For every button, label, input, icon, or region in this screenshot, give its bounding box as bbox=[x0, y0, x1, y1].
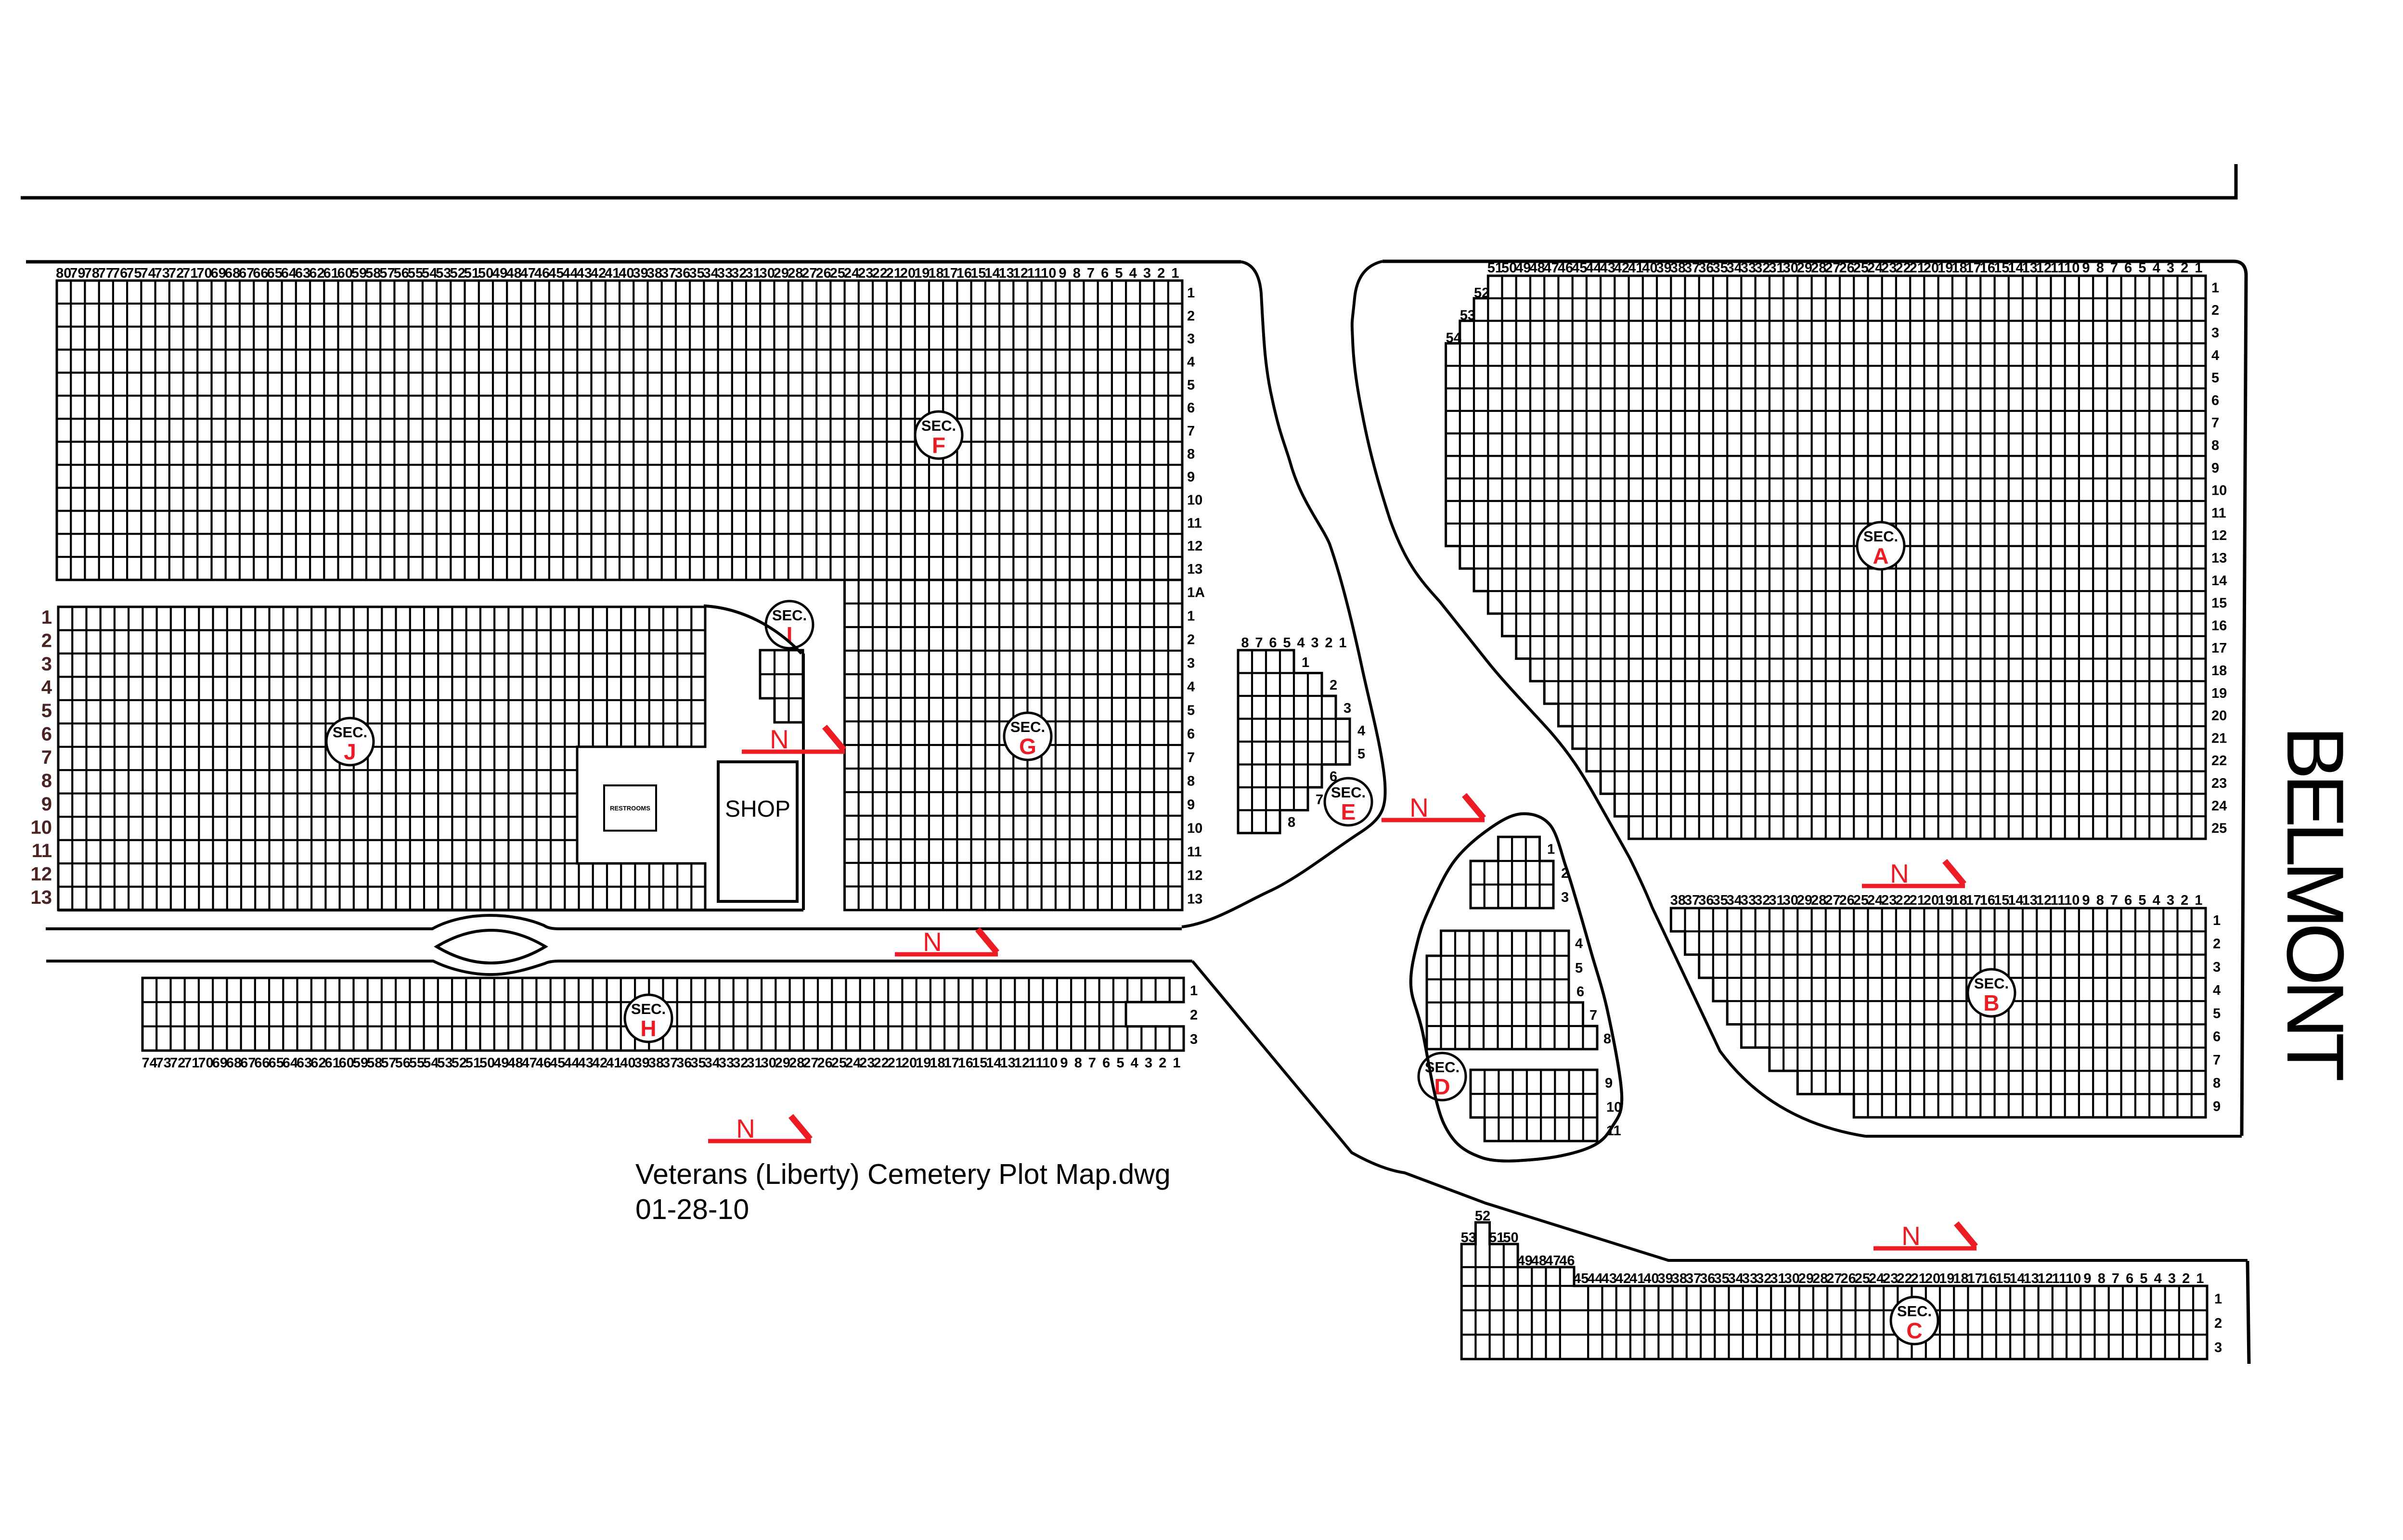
svg-text:3: 3 bbox=[1187, 332, 1195, 347]
svg-text:1: 1 bbox=[1547, 842, 1555, 857]
svg-text:28: 28 bbox=[1811, 260, 1826, 276]
svg-text:50: 50 bbox=[478, 266, 493, 281]
svg-text:54: 54 bbox=[422, 266, 437, 281]
svg-text:N: N bbox=[736, 1114, 755, 1143]
svg-text:17: 17 bbox=[1966, 893, 1981, 908]
svg-text:6: 6 bbox=[2126, 1271, 2133, 1286]
svg-text:5: 5 bbox=[2140, 1271, 2147, 1286]
svg-text:1: 1 bbox=[1187, 609, 1195, 624]
svg-text:3: 3 bbox=[2167, 260, 2174, 276]
svg-text:60: 60 bbox=[337, 266, 353, 281]
svg-text:74: 74 bbox=[140, 266, 155, 281]
svg-text:65: 65 bbox=[269, 1055, 284, 1071]
svg-text:31: 31 bbox=[745, 266, 761, 281]
svg-text:22: 22 bbox=[1895, 893, 1911, 908]
svg-text:10: 10 bbox=[2066, 1271, 2081, 1286]
svg-text:15: 15 bbox=[972, 1055, 987, 1071]
svg-text:52: 52 bbox=[452, 1055, 467, 1071]
svg-text:43: 43 bbox=[1600, 260, 1615, 276]
svg-text:43: 43 bbox=[577, 266, 592, 281]
svg-text:01-28-10: 01-28-10 bbox=[635, 1193, 749, 1225]
svg-text:5: 5 bbox=[2138, 893, 2146, 908]
svg-text:SEC.: SEC. bbox=[631, 1001, 666, 1017]
svg-text:9: 9 bbox=[1187, 470, 1195, 485]
svg-text:19: 19 bbox=[1938, 893, 1953, 908]
svg-text:40: 40 bbox=[620, 1055, 635, 1071]
svg-text:SEC.: SEC. bbox=[333, 724, 367, 741]
svg-text:4: 4 bbox=[41, 677, 52, 698]
svg-text:28: 28 bbox=[789, 1055, 804, 1071]
svg-text:61: 61 bbox=[324, 1055, 340, 1071]
svg-text:68: 68 bbox=[225, 266, 240, 281]
svg-text:23: 23 bbox=[859, 1055, 875, 1071]
svg-text:SEC.: SEC. bbox=[1010, 719, 1045, 735]
svg-text:4: 4 bbox=[2153, 893, 2160, 908]
svg-text:23: 23 bbox=[2211, 776, 2227, 791]
svg-text:13: 13 bbox=[2022, 893, 2037, 908]
svg-text:52: 52 bbox=[1474, 285, 1489, 301]
svg-text:47: 47 bbox=[1544, 260, 1559, 276]
svg-text:23: 23 bbox=[858, 266, 873, 281]
svg-text:2: 2 bbox=[1325, 635, 1332, 651]
svg-text:6: 6 bbox=[1101, 266, 1109, 281]
svg-text:2: 2 bbox=[2182, 1271, 2190, 1286]
svg-text:4: 4 bbox=[1187, 355, 1195, 370]
svg-text:13: 13 bbox=[1000, 1055, 1015, 1071]
svg-text:25: 25 bbox=[1853, 260, 1869, 276]
svg-text:9: 9 bbox=[2082, 260, 2090, 276]
svg-text:35: 35 bbox=[689, 266, 704, 281]
svg-text:3: 3 bbox=[1145, 1055, 1152, 1071]
svg-text:58: 58 bbox=[367, 1055, 382, 1071]
svg-text:7: 7 bbox=[1087, 266, 1095, 281]
svg-text:8: 8 bbox=[2213, 1076, 2221, 1091]
svg-text:38: 38 bbox=[647, 266, 662, 281]
svg-text:20: 20 bbox=[1924, 260, 1939, 276]
svg-text:65: 65 bbox=[267, 266, 283, 281]
svg-text:27: 27 bbox=[1825, 893, 1840, 908]
svg-text:12: 12 bbox=[2036, 260, 2052, 276]
svg-text:14: 14 bbox=[2211, 573, 2227, 589]
svg-text:5: 5 bbox=[2211, 371, 2219, 386]
svg-text:31: 31 bbox=[747, 1055, 762, 1071]
svg-text:SEC.: SEC. bbox=[921, 417, 956, 434]
svg-text:59: 59 bbox=[353, 1055, 368, 1071]
svg-text:74: 74 bbox=[142, 1055, 157, 1071]
svg-text:21: 21 bbox=[886, 266, 902, 281]
svg-text:46: 46 bbox=[534, 266, 550, 281]
svg-text:7: 7 bbox=[2110, 893, 2118, 908]
svg-text:F: F bbox=[932, 433, 945, 458]
svg-text:45: 45 bbox=[1572, 260, 1587, 276]
svg-text:16: 16 bbox=[1980, 260, 1995, 276]
svg-text:21: 21 bbox=[1910, 893, 1925, 908]
svg-text:53: 53 bbox=[437, 1055, 452, 1071]
svg-text:33: 33 bbox=[719, 1055, 734, 1071]
svg-text:61: 61 bbox=[323, 266, 338, 281]
svg-text:44: 44 bbox=[562, 266, 578, 281]
svg-text:2: 2 bbox=[2213, 937, 2221, 952]
svg-text:21: 21 bbox=[2211, 731, 2227, 746]
svg-text:SEC.: SEC. bbox=[1863, 528, 1898, 545]
svg-text:N: N bbox=[1409, 793, 1429, 822]
svg-text:50: 50 bbox=[1501, 260, 1517, 276]
svg-text:SHOP: SHOP bbox=[725, 796, 790, 822]
svg-text:10: 10 bbox=[1187, 493, 1202, 508]
svg-text:12: 12 bbox=[2036, 893, 2052, 908]
svg-text:6: 6 bbox=[1102, 1055, 1110, 1071]
svg-text:3: 3 bbox=[41, 654, 52, 675]
svg-text:10: 10 bbox=[2064, 893, 2080, 908]
svg-text:H: H bbox=[640, 1016, 656, 1041]
svg-text:20: 20 bbox=[1925, 1271, 1940, 1286]
svg-text:24: 24 bbox=[1869, 1271, 1884, 1286]
svg-text:8: 8 bbox=[2096, 893, 2104, 908]
svg-text:46: 46 bbox=[1559, 1253, 1575, 1269]
svg-text:4: 4 bbox=[1187, 680, 1195, 695]
svg-text:50: 50 bbox=[1503, 1230, 1518, 1245]
svg-text:1A: 1A bbox=[1187, 585, 1205, 601]
svg-text:62: 62 bbox=[310, 1055, 326, 1071]
svg-text:4: 4 bbox=[1575, 936, 1583, 951]
svg-text:39: 39 bbox=[633, 266, 648, 281]
svg-text:72: 72 bbox=[170, 1055, 185, 1071]
svg-text:13: 13 bbox=[31, 887, 52, 908]
svg-text:16: 16 bbox=[1981, 1271, 1997, 1286]
svg-text:26: 26 bbox=[1840, 1271, 1856, 1286]
svg-text:38: 38 bbox=[1670, 893, 1686, 908]
svg-text:50: 50 bbox=[479, 1055, 495, 1071]
svg-text:19: 19 bbox=[914, 266, 930, 281]
svg-text:1: 1 bbox=[2211, 280, 2219, 295]
svg-text:54: 54 bbox=[423, 1055, 439, 1071]
svg-text:N: N bbox=[923, 927, 942, 957]
svg-text:42: 42 bbox=[1615, 1271, 1631, 1286]
svg-text:18: 18 bbox=[928, 266, 943, 281]
svg-text:14: 14 bbox=[986, 1055, 1001, 1071]
svg-text:32: 32 bbox=[1755, 893, 1770, 908]
svg-text:6: 6 bbox=[2213, 1029, 2221, 1045]
svg-text:13: 13 bbox=[1187, 892, 1202, 907]
svg-text:18: 18 bbox=[930, 1055, 945, 1071]
svg-text:9: 9 bbox=[41, 794, 52, 815]
svg-text:49: 49 bbox=[492, 266, 507, 281]
svg-text:34: 34 bbox=[1727, 893, 1742, 908]
svg-text:24: 24 bbox=[1867, 893, 1883, 908]
svg-text:10: 10 bbox=[2064, 260, 2080, 276]
svg-text:57: 57 bbox=[381, 1055, 396, 1071]
svg-text:1: 1 bbox=[2195, 893, 2202, 908]
svg-text:6: 6 bbox=[41, 724, 52, 745]
svg-text:13: 13 bbox=[2211, 551, 2227, 566]
svg-text:67: 67 bbox=[239, 266, 254, 281]
svg-text:5: 5 bbox=[1187, 703, 1195, 719]
svg-text:12: 12 bbox=[2038, 1271, 2053, 1286]
svg-text:8: 8 bbox=[1187, 774, 1195, 789]
svg-text:21: 21 bbox=[888, 1055, 903, 1071]
svg-text:6: 6 bbox=[2211, 393, 2219, 408]
svg-text:34: 34 bbox=[705, 1055, 720, 1071]
svg-text:15: 15 bbox=[1994, 260, 2009, 276]
svg-text:11: 11 bbox=[2051, 893, 2066, 908]
svg-text:25: 25 bbox=[831, 1055, 847, 1071]
svg-text:32: 32 bbox=[733, 1055, 748, 1071]
svg-text:B: B bbox=[1983, 990, 1999, 1015]
svg-text:5: 5 bbox=[1357, 746, 1365, 762]
svg-text:SEC.: SEC. bbox=[1974, 975, 2009, 992]
svg-text:52: 52 bbox=[1475, 1208, 1490, 1224]
svg-text:69: 69 bbox=[212, 1055, 228, 1071]
svg-text:17: 17 bbox=[944, 1055, 959, 1071]
svg-text:29: 29 bbox=[1797, 893, 1812, 908]
svg-text:76: 76 bbox=[112, 266, 128, 281]
svg-text:20: 20 bbox=[1924, 893, 1939, 908]
svg-text:15: 15 bbox=[1994, 893, 2009, 908]
svg-text:N: N bbox=[1901, 1221, 1921, 1251]
svg-text:70: 70 bbox=[198, 1055, 213, 1071]
svg-text:41: 41 bbox=[1628, 260, 1643, 276]
svg-text:1: 1 bbox=[1187, 285, 1195, 301]
svg-text:47: 47 bbox=[520, 266, 536, 281]
svg-text:24: 24 bbox=[2211, 798, 2227, 814]
svg-text:48: 48 bbox=[1529, 260, 1545, 276]
svg-text:16: 16 bbox=[1980, 893, 1995, 908]
svg-text:J: J bbox=[344, 739, 356, 764]
svg-text:2: 2 bbox=[1159, 1055, 1166, 1071]
svg-text:13: 13 bbox=[998, 266, 1014, 281]
svg-text:6: 6 bbox=[1187, 400, 1195, 416]
svg-text:6: 6 bbox=[1187, 727, 1195, 742]
svg-text:35: 35 bbox=[1712, 260, 1728, 276]
svg-text:8: 8 bbox=[1241, 635, 1249, 651]
svg-text:34: 34 bbox=[703, 266, 719, 281]
svg-text:12: 12 bbox=[1187, 539, 1202, 554]
svg-text:D: D bbox=[1434, 1074, 1450, 1099]
svg-text:5: 5 bbox=[1575, 961, 1583, 976]
svg-text:57: 57 bbox=[379, 266, 395, 281]
svg-text:18: 18 bbox=[1953, 1271, 1968, 1286]
svg-text:27: 27 bbox=[1826, 1271, 1842, 1286]
svg-text:39: 39 bbox=[634, 1055, 649, 1071]
svg-text:38: 38 bbox=[1672, 1271, 1687, 1286]
svg-text:10: 10 bbox=[2211, 483, 2227, 499]
svg-text:15: 15 bbox=[970, 266, 986, 281]
svg-text:71: 71 bbox=[184, 1055, 199, 1071]
svg-text:1: 1 bbox=[41, 607, 52, 628]
svg-text:30: 30 bbox=[1783, 893, 1798, 908]
svg-text:48: 48 bbox=[1531, 1253, 1547, 1269]
svg-text:4: 4 bbox=[1297, 635, 1305, 651]
svg-text:22: 22 bbox=[872, 266, 887, 281]
svg-text:9: 9 bbox=[1605, 1076, 1613, 1091]
svg-text:51: 51 bbox=[1489, 1230, 1504, 1245]
svg-text:47: 47 bbox=[522, 1055, 537, 1071]
svg-text:1: 1 bbox=[2214, 1291, 2222, 1307]
svg-text:49: 49 bbox=[493, 1055, 509, 1071]
svg-text:14: 14 bbox=[2009, 1271, 2025, 1286]
svg-text:23: 23 bbox=[1881, 260, 1897, 276]
svg-text:12: 12 bbox=[1014, 1055, 1030, 1071]
svg-text:9: 9 bbox=[2083, 1271, 2091, 1286]
svg-text:53: 53 bbox=[1460, 308, 1475, 323]
svg-text:9: 9 bbox=[1059, 266, 1066, 281]
svg-text:45: 45 bbox=[548, 266, 564, 281]
svg-text:6: 6 bbox=[1576, 984, 1584, 1000]
svg-text:55: 55 bbox=[408, 266, 423, 281]
svg-text:29: 29 bbox=[774, 266, 789, 281]
svg-text:35: 35 bbox=[1712, 893, 1728, 908]
svg-text:2: 2 bbox=[2211, 303, 2219, 318]
svg-text:39: 39 bbox=[1657, 1271, 1673, 1286]
svg-text:80: 80 bbox=[56, 266, 71, 281]
svg-text:66: 66 bbox=[254, 1055, 270, 1071]
svg-text:7: 7 bbox=[1589, 1008, 1597, 1023]
svg-text:25: 25 bbox=[2211, 821, 2227, 836]
svg-text:36: 36 bbox=[1700, 1271, 1715, 1286]
svg-text:56: 56 bbox=[395, 1055, 411, 1071]
svg-text:10: 10 bbox=[1041, 266, 1056, 281]
svg-text:13: 13 bbox=[2022, 260, 2037, 276]
svg-text:1: 1 bbox=[1190, 983, 1198, 999]
svg-text:9: 9 bbox=[2082, 893, 2090, 908]
svg-text:62: 62 bbox=[309, 266, 324, 281]
svg-text:5: 5 bbox=[1283, 635, 1291, 651]
svg-text:12: 12 bbox=[2211, 528, 2227, 543]
svg-text:51: 51 bbox=[465, 1055, 481, 1071]
svg-text:40: 40 bbox=[1643, 1271, 1659, 1286]
svg-text:30: 30 bbox=[760, 266, 775, 281]
svg-text:25: 25 bbox=[1853, 893, 1869, 908]
svg-text:2: 2 bbox=[2181, 260, 2188, 276]
svg-text:27: 27 bbox=[803, 1055, 818, 1071]
svg-text:44: 44 bbox=[564, 1055, 579, 1071]
svg-text:7: 7 bbox=[41, 747, 52, 768]
svg-text:73: 73 bbox=[155, 266, 170, 281]
svg-text:51: 51 bbox=[1487, 260, 1503, 276]
svg-text:10: 10 bbox=[1042, 1055, 1058, 1071]
svg-text:19: 19 bbox=[1938, 260, 1953, 276]
svg-text:26: 26 bbox=[815, 266, 831, 281]
svg-text:1: 1 bbox=[1339, 635, 1346, 651]
svg-text:47: 47 bbox=[1545, 1253, 1561, 1269]
svg-text:34: 34 bbox=[1728, 1271, 1744, 1286]
svg-text:11: 11 bbox=[1187, 845, 1202, 860]
svg-text:35: 35 bbox=[690, 1055, 706, 1071]
svg-text:8: 8 bbox=[1073, 266, 1081, 281]
svg-text:52: 52 bbox=[450, 266, 465, 281]
svg-text:2: 2 bbox=[2181, 893, 2188, 908]
svg-text:8: 8 bbox=[1603, 1031, 1611, 1047]
svg-text:SEC.: SEC. bbox=[1331, 784, 1366, 801]
svg-text:7: 7 bbox=[1316, 792, 1323, 808]
svg-text:30: 30 bbox=[1784, 1271, 1800, 1286]
svg-text:SEC.: SEC. bbox=[772, 607, 807, 624]
svg-text:31: 31 bbox=[1769, 260, 1784, 276]
svg-text:54: 54 bbox=[1446, 330, 1461, 346]
svg-text:9: 9 bbox=[1187, 797, 1195, 813]
svg-text:N: N bbox=[770, 724, 789, 754]
svg-text:32: 32 bbox=[731, 266, 747, 281]
svg-text:63: 63 bbox=[297, 1055, 312, 1071]
svg-text:11: 11 bbox=[2052, 1271, 2067, 1286]
svg-text:7: 7 bbox=[1088, 1055, 1096, 1071]
svg-text:48: 48 bbox=[507, 1055, 523, 1071]
svg-text:36: 36 bbox=[1698, 893, 1714, 908]
svg-text:29: 29 bbox=[775, 1055, 790, 1071]
svg-text:1: 1 bbox=[2195, 260, 2202, 276]
svg-text:4: 4 bbox=[2153, 260, 2160, 276]
svg-text:24: 24 bbox=[845, 1055, 861, 1071]
svg-text:31: 31 bbox=[1770, 1271, 1785, 1286]
svg-text:33: 33 bbox=[717, 266, 733, 281]
svg-text:30: 30 bbox=[1783, 260, 1798, 276]
svg-text:22: 22 bbox=[1897, 1271, 1912, 1286]
svg-text:G: G bbox=[1019, 734, 1036, 759]
svg-text:43: 43 bbox=[1602, 1271, 1617, 1286]
svg-text:1: 1 bbox=[1173, 1055, 1180, 1071]
svg-text:11: 11 bbox=[2211, 505, 2226, 521]
svg-text:69: 69 bbox=[211, 266, 226, 281]
svg-text:8: 8 bbox=[1074, 1055, 1082, 1071]
svg-text:38: 38 bbox=[1670, 260, 1686, 276]
svg-text:18: 18 bbox=[1951, 260, 1967, 276]
svg-text:41: 41 bbox=[1629, 1271, 1645, 1286]
svg-text:37: 37 bbox=[1684, 893, 1700, 908]
svg-text:37: 37 bbox=[1686, 1271, 1701, 1286]
svg-text:31: 31 bbox=[1769, 893, 1784, 908]
svg-text:56: 56 bbox=[394, 266, 409, 281]
svg-text:32: 32 bbox=[1756, 1271, 1771, 1286]
svg-text:58: 58 bbox=[365, 266, 381, 281]
svg-text:19: 19 bbox=[1939, 1271, 1954, 1286]
svg-text:64: 64 bbox=[281, 266, 297, 281]
svg-text:44: 44 bbox=[1586, 260, 1601, 276]
svg-text:38: 38 bbox=[648, 1055, 664, 1071]
svg-text:13: 13 bbox=[1187, 562, 1202, 577]
svg-text:40: 40 bbox=[619, 266, 634, 281]
svg-text:3: 3 bbox=[1311, 635, 1318, 651]
svg-text:14: 14 bbox=[984, 266, 1000, 281]
svg-text:17: 17 bbox=[1967, 1271, 1983, 1286]
svg-text:17: 17 bbox=[1966, 260, 1981, 276]
svg-text:33: 33 bbox=[1741, 893, 1756, 908]
svg-text:44: 44 bbox=[1587, 1271, 1602, 1286]
svg-text:46: 46 bbox=[1558, 260, 1573, 276]
svg-text:18: 18 bbox=[1951, 893, 1967, 908]
svg-text:3: 3 bbox=[2168, 1271, 2176, 1286]
svg-text:11: 11 bbox=[32, 840, 52, 861]
svg-text:10: 10 bbox=[1187, 821, 1202, 836]
svg-text:59: 59 bbox=[351, 266, 367, 281]
svg-text:23: 23 bbox=[1881, 893, 1897, 908]
svg-text:51: 51 bbox=[464, 266, 479, 281]
svg-text:3: 3 bbox=[1143, 266, 1151, 281]
svg-text:C: C bbox=[1906, 1318, 1922, 1343]
svg-text:37: 37 bbox=[1684, 260, 1700, 276]
svg-text:4: 4 bbox=[1131, 1055, 1138, 1071]
svg-text:1: 1 bbox=[1171, 266, 1179, 281]
svg-text:26: 26 bbox=[1839, 893, 1854, 908]
svg-text:8: 8 bbox=[2211, 438, 2219, 453]
svg-text:25: 25 bbox=[1855, 1271, 1870, 1286]
svg-text:2: 2 bbox=[1157, 266, 1165, 281]
svg-text:23: 23 bbox=[1883, 1271, 1898, 1286]
svg-text:8: 8 bbox=[1187, 447, 1195, 462]
svg-text:37: 37 bbox=[661, 266, 676, 281]
svg-text:N: N bbox=[1890, 859, 1909, 888]
svg-text:7: 7 bbox=[1187, 423, 1195, 439]
svg-text:5: 5 bbox=[1116, 1055, 1124, 1071]
